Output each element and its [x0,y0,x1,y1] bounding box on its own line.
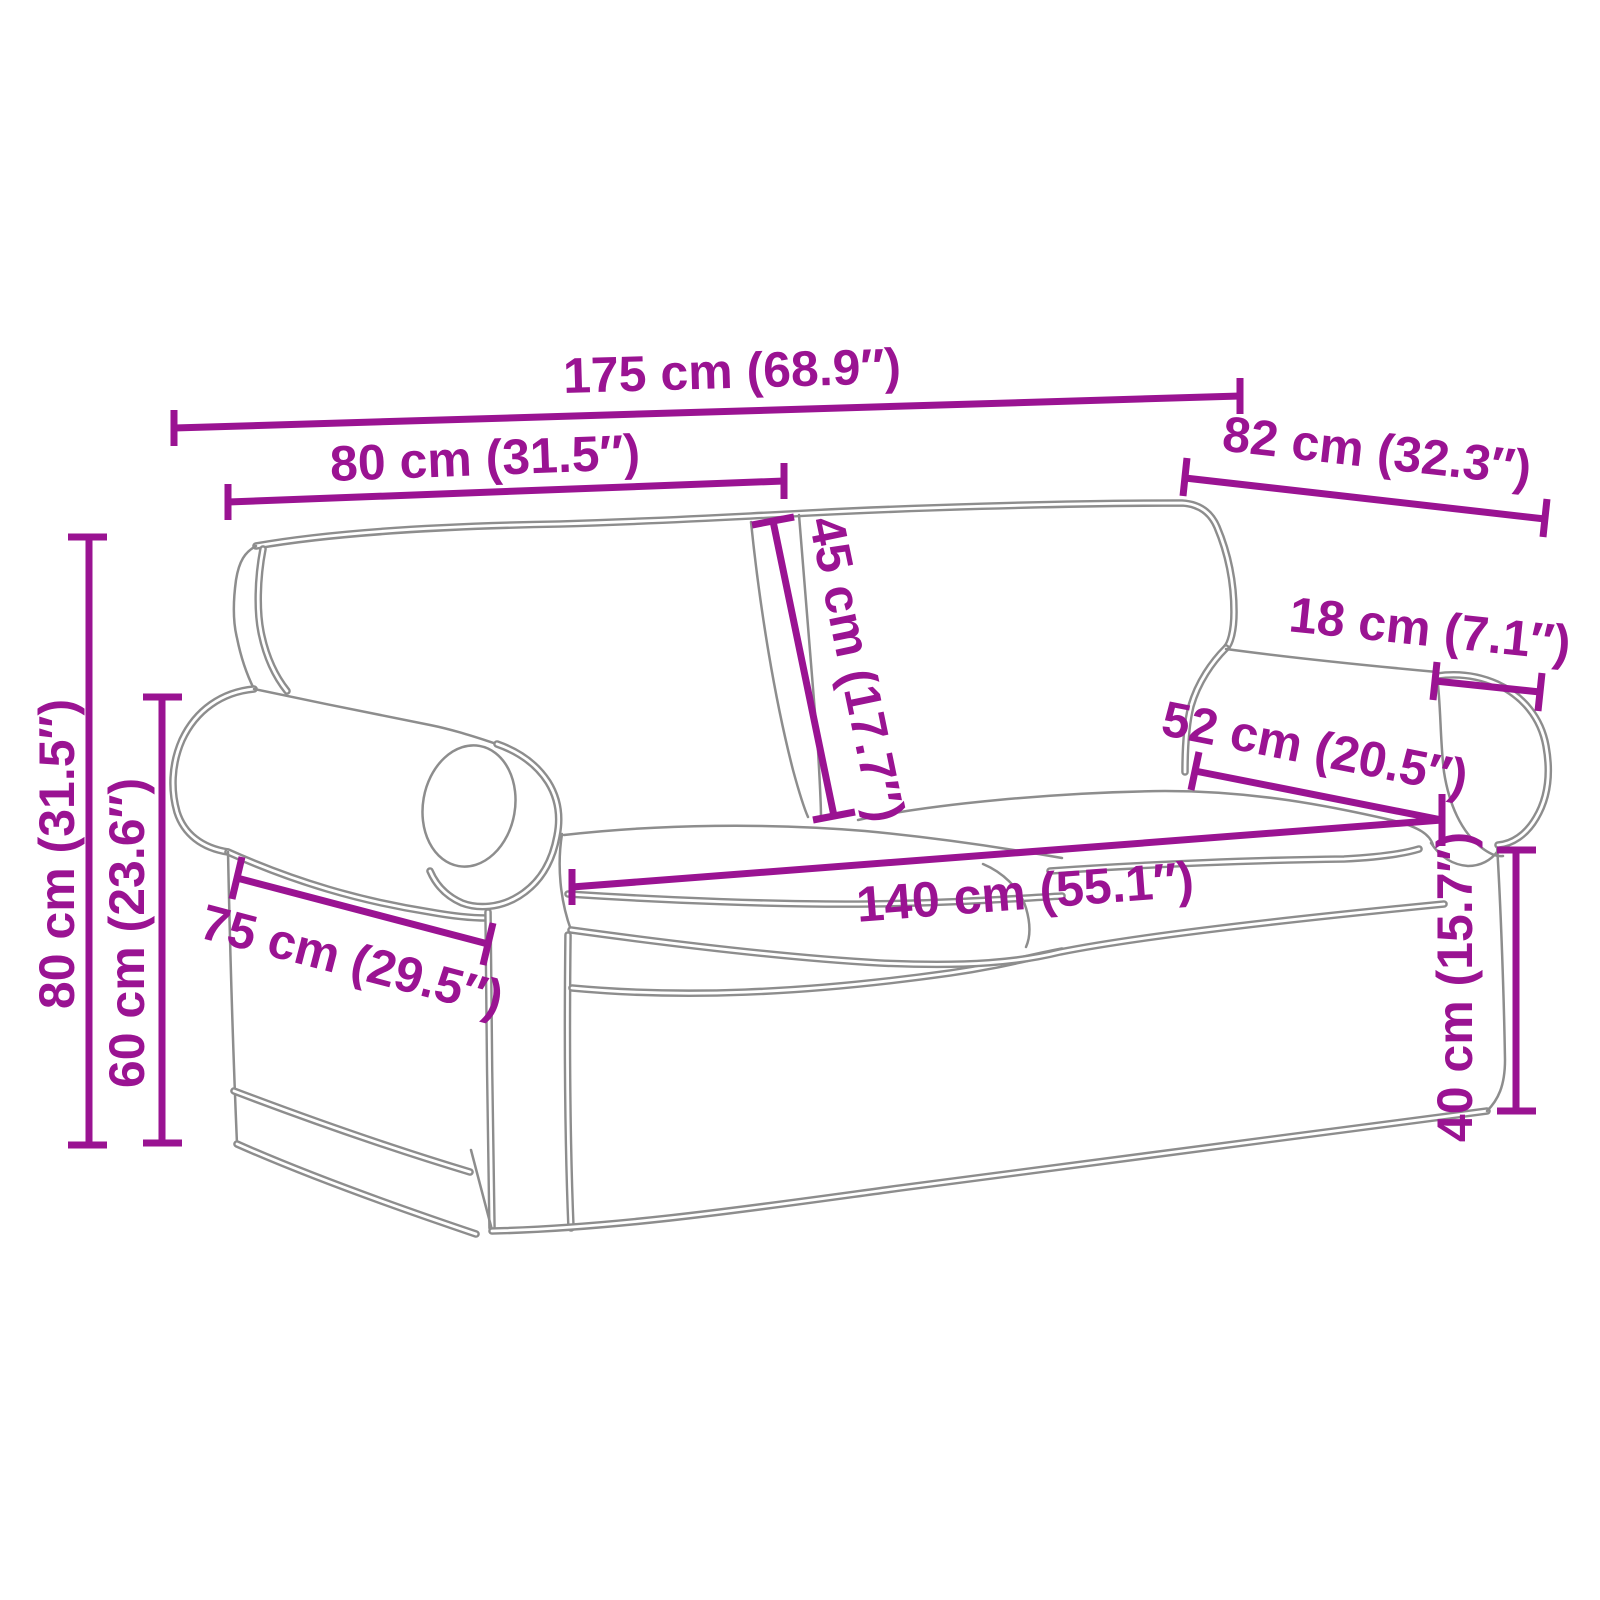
svg-text:175 cm (68.9″): 175 cm (68.9″) [562,338,902,404]
svg-text:40 cm (15.7″): 40 cm (15.7″) [1427,832,1483,1142]
svg-text:52 cm (20.5″): 52 cm (20.5″) [1157,690,1472,805]
svg-text:45 cm (17.7″): 45 cm (17.7″) [798,511,916,826]
svg-text:82 cm (32.3″): 82 cm (32.3″) [1220,406,1535,497]
svg-text:80 cm (31.5″): 80 cm (31.5″) [29,699,85,1009]
svg-text:18 cm (7.1″): 18 cm (7.1″) [1287,586,1574,671]
svg-text:60 cm (23.6″): 60 cm (23.6″) [99,778,155,1088]
svg-text:80 cm (31.5″): 80 cm (31.5″) [329,424,641,492]
